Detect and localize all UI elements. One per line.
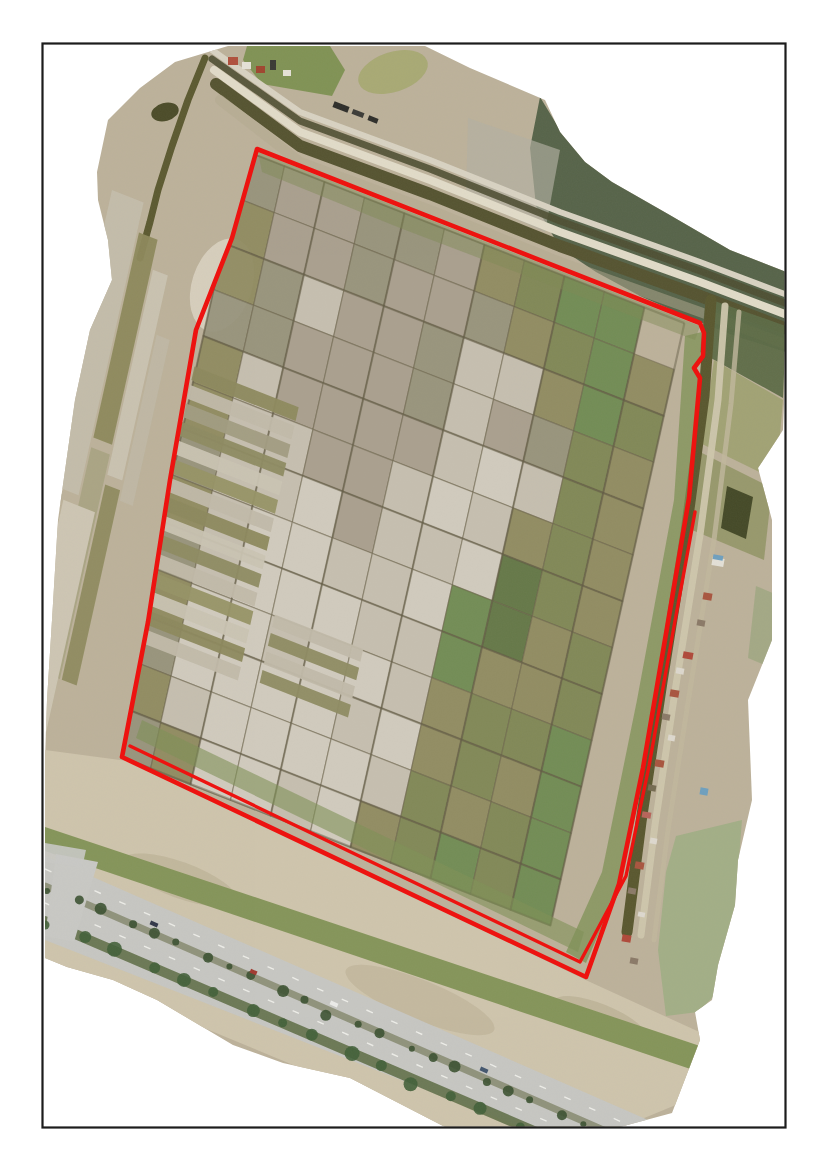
tree	[631, 1143, 643, 1155]
tree	[600, 1135, 609, 1144]
tree	[544, 1133, 556, 1145]
map-frame-interior	[0, 42, 790, 1174]
orthophoto-image	[0, 0, 830, 1174]
tree	[571, 1144, 586, 1159]
report-page	[0, 0, 830, 1174]
tree	[614, 1164, 625, 1174]
